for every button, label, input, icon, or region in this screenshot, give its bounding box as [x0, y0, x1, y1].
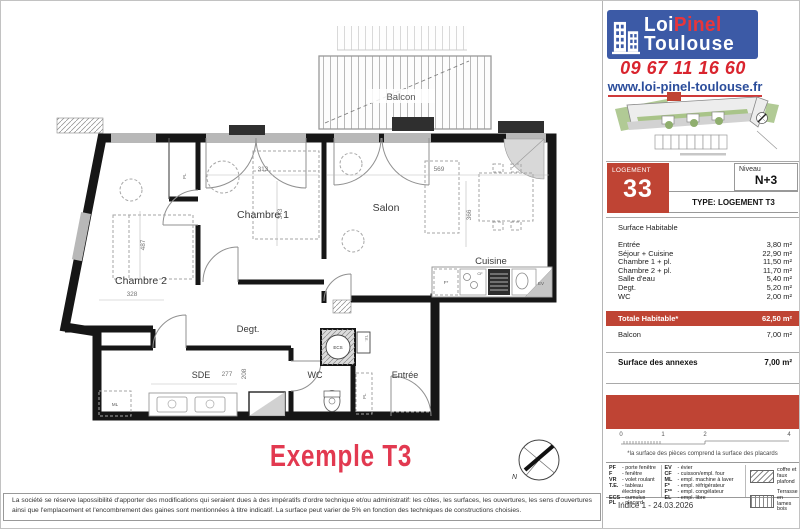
sidebar-rule-top: [606, 161, 799, 162]
plan-legend: PF- porte fenêtre F- fenêtre VR- volet r…: [606, 462, 799, 498]
compass-n-label: N: [512, 474, 518, 481]
dim-sde-h: 208: [241, 368, 248, 379]
legend-label: Terrasse en lames bois: [777, 490, 798, 514]
legend-column-1: PF- porte fenêtre F- fenêtre VR- volet r…: [606, 465, 662, 497]
sidebar-rule-4: [606, 383, 799, 384]
phone-number[interactable]: 09 67 11 16 60: [600, 58, 766, 79]
ecs-label: ECS: [333, 345, 342, 350]
dim-chambre1-w: 313: [258, 166, 269, 173]
upper-balcony-fragment: [337, 26, 467, 50]
pl-closet-label: PL: [182, 173, 187, 179]
plan-sheet: Balcon: [0, 0, 800, 529]
kitchen-equipment: F* CF EV: [432, 267, 552, 297]
floor-plan-drawing: Balcon: [1, 1, 601, 491]
scale-bar: 0 1 2 4: [606, 430, 799, 450]
level-value: N+3: [735, 173, 797, 187]
annex-row: Surface des annexes 7,00 m²: [606, 358, 799, 367]
legend-label: coffre et faux plafond: [777, 468, 797, 486]
annex-value: 7,00 m²: [764, 358, 792, 367]
plan-title: Exemple T3: [224, 438, 458, 474]
unit-label: LOGEMENT: [607, 163, 669, 174]
balcony-row: Balcon 7,00 m²: [606, 330, 799, 339]
legend-label: - tableau électrique: [622, 484, 659, 496]
total-habitable-bar: Totale Habitable* 62,50 m²: [606, 311, 799, 326]
balcony-label: Balcon: [618, 330, 641, 339]
ml-label: ML: [112, 402, 119, 407]
pl-entree-label: PL: [362, 393, 367, 399]
brand-logo-text: LoiPinel Toulouse: [644, 16, 735, 54]
total-label: Totale Habitable*: [618, 314, 678, 323]
annex-label: Surface des annexes: [618, 358, 698, 367]
cooktop-label: CF: [477, 271, 483, 276]
red-banner-block: [606, 395, 799, 429]
legend-column-2: EV- évier CF- cuisson/empl. four ML- emp…: [662, 465, 746, 497]
sidebar-rule-3: [606, 352, 799, 353]
level-cell: Niveau N+3: [734, 163, 798, 191]
sink-label: EV: [538, 281, 544, 286]
total-value: 62,50 m²: [762, 314, 792, 323]
scale-0: 0: [619, 432, 623, 438]
brand-logo: LoiPinel Toulouse: [607, 10, 758, 59]
te-label: T.E.: [364, 335, 368, 342]
room-label-degt: Degt.: [237, 324, 260, 335]
dim-salon-h: 366: [466, 209, 473, 220]
legend-column-3: coffre et faux plafond Terrasse en lames…: [746, 465, 799, 497]
room-label-balcon: Balcon: [386, 92, 415, 103]
room-label-sde: SDE: [192, 370, 211, 380]
parking-row: [655, 135, 727, 149]
room-name: WC: [618, 293, 631, 302]
hatch-swatch: [750, 470, 774, 483]
unit-number-box: LOGEMENT 33: [607, 163, 669, 213]
room-label-entree: Entrée: [392, 370, 419, 380]
level-label: Niveau: [735, 164, 797, 173]
legend-abbr: T.E.: [609, 484, 622, 496]
room-label-chambre1: Chambre 1: [237, 209, 289, 221]
brand-word-toulouse: Toulouse: [644, 35, 735, 54]
room-label-cuisine: Cuisine: [475, 256, 507, 267]
dim-chambre2-h: 487: [140, 239, 147, 250]
dim-chambre2-w: 328: [127, 291, 138, 298]
room-label-chambre2: Chambre 2: [115, 275, 167, 287]
site-compass-icon: [757, 113, 768, 124]
street-label-smudge: [680, 153, 726, 156]
fridge-label: F*: [444, 280, 449, 285]
dim-sde-w: 277: [222, 371, 233, 378]
surface-section-title: Surface Habitable: [606, 223, 799, 232]
stripes-swatch: [750, 495, 774, 508]
surface-table: Surface Habitable Entrée3,80 m² Séjour +…: [606, 223, 799, 301]
balcony-value: 7,00 m²: [767, 330, 792, 339]
room-label-wc: WC: [308, 370, 323, 380]
room-area: 2,00 m²: [767, 293, 792, 302]
scale-2: 2: [703, 432, 707, 438]
disclaimer-text: La société se réserve lapossibilité d'ap…: [3, 493, 601, 521]
building-icon: [612, 15, 640, 55]
sidebar-rule-2: [606, 217, 799, 218]
surface-row: WC2,00 m²: [606, 293, 799, 302]
unit-number: 33: [607, 175, 669, 204]
site-plan-thumbnail: [607, 91, 799, 161]
scale-1: 1: [661, 432, 665, 438]
unit-type-row: TYPE: LOGEMENT T3: [669, 191, 798, 213]
dim-salon-w: 569: [434, 166, 445, 173]
compass-icon: N: [511, 432, 567, 488]
room-label-salon: Salon: [373, 202, 400, 214]
surface-footnote: *la surface des pièces comprend la surfa…: [606, 451, 799, 457]
scale-4: 4: [787, 432, 791, 438]
unit-location-marker: [667, 92, 681, 101]
revision-note: Indice 1 - 24.03.2026: [618, 501, 693, 510]
